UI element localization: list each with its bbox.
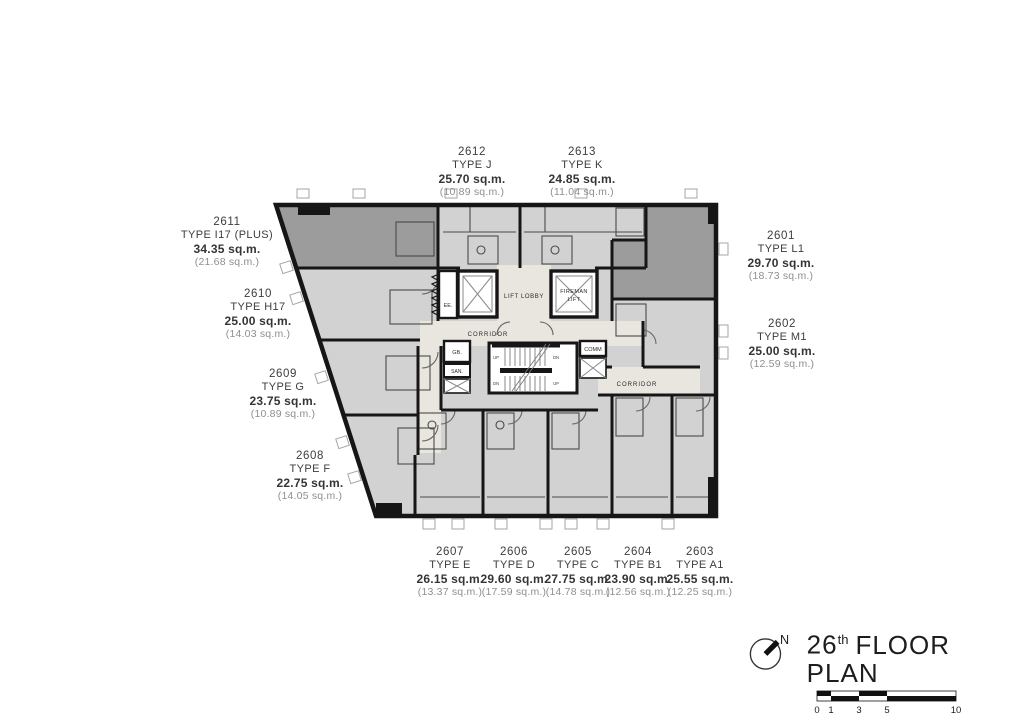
unit-label-2605: 2605 TYPE C 27.75 sq.m. (14.78 sq.m.): [545, 546, 612, 599]
unit-type: TYPE I17 (PLUS): [181, 229, 273, 242]
unit-label-2608: 2608 TYPE F 22.75 sq.m. (14.05 sq.m.): [277, 450, 344, 503]
north-compass: N: [746, 626, 793, 680]
unit-area: 27.75 sq.m.: [545, 572, 612, 586]
unit-number: 2609: [250, 368, 317, 381]
unit-label-2603: 2603 TYPE A1 25.55 sq.m. (12.25 sq.m.): [667, 546, 734, 599]
unit-number: 2603: [667, 546, 734, 559]
stairs-dn-label: DN: [493, 381, 499, 386]
unit-number: 2607: [417, 546, 484, 559]
unit-area-2611: [277, 206, 438, 268]
unit-type: TYPE C: [545, 559, 612, 572]
unit-type: TYPE M1: [749, 331, 816, 344]
stairs-dn-label: DN: [553, 355, 559, 360]
unit-number: 2605: [545, 546, 612, 559]
unit-inner-area: (17.59 sq.m.): [481, 586, 548, 599]
unit-inner-area: (21.68 sq.m.): [181, 256, 273, 269]
unit-number: 2613: [549, 146, 616, 159]
scale-tick: 10: [950, 705, 961, 716]
fireman-lift-label: FIREMAN: [560, 289, 588, 295]
unit-number: 2610: [225, 288, 292, 301]
stairs-up-label: UP: [493, 355, 499, 360]
unit-number: 2601: [748, 230, 815, 243]
unit-number: 2606: [481, 546, 548, 559]
san-label: SAN.: [451, 369, 463, 375]
unit-inner-area: (10.89 sq.m.): [439, 186, 506, 199]
unit-label-2612: 2612 TYPE J 25.70 sq.m. (10.89 sq.m.): [439, 146, 506, 199]
ordinal-suffix: th: [838, 632, 849, 647]
unit-area: 24.85 sq.m.: [549, 172, 616, 186]
unit-inner-area: (14.05 sq.m.): [277, 490, 344, 503]
unit-type: TYPE A1: [667, 559, 734, 572]
unit-inner-area: (13.37 sq.m.): [417, 586, 484, 599]
unit-area: 29.60 sq.m.: [481, 572, 548, 586]
unit-type: TYPE G: [250, 381, 317, 394]
unit-label-2609: 2609 TYPE G 23.75 sq.m. (10.89 sq.m.): [250, 368, 317, 421]
scale-tick: 5: [884, 705, 889, 716]
unit-number: 2602: [749, 318, 816, 331]
floor-plan-page: LIFT LOBBY FIREMAN LIFT CORRIDOR CORRIDO…: [0, 0, 1024, 724]
scale-tick: 1: [828, 705, 833, 716]
corridor-lower-label: CORRIDOR: [617, 382, 658, 388]
unit-type: TYPE H17: [225, 301, 292, 314]
stairs-up-label: UP: [553, 381, 559, 386]
unit-type: TYPE D: [481, 559, 548, 572]
unit-area: 23.75 sq.m.: [250, 394, 317, 408]
unit-label-2606: 2606 TYPE D 29.60 sq.m. (17.59 sq.m.): [481, 546, 548, 599]
unit-type: TYPE K: [549, 159, 616, 172]
unit-label-2607: 2607 TYPE E 26.15 sq.m. (13.37 sq.m.): [417, 546, 484, 599]
unit-area: 25.00 sq.m.: [749, 344, 816, 358]
unit-area: 25.00 sq.m.: [225, 314, 292, 328]
unit-area: 26.15 sq.m.: [417, 572, 484, 586]
floor-plan-drawing: LIFT LOBBY FIREMAN LIFT CORRIDOR CORRIDO…: [0, 0, 1024, 724]
unit-inner-area: (12.56 sq.m.): [605, 586, 672, 599]
unit-number: 2608: [277, 450, 344, 463]
unit-label-2602: 2602 TYPE M1 25.00 sq.m. (12.59 sq.m.): [749, 318, 816, 371]
unit-type: TYPE F: [277, 463, 344, 476]
comm-label: COMM: [584, 347, 602, 353]
unit-type: TYPE E: [417, 559, 484, 572]
gb-label: GB.: [452, 350, 462, 356]
unit-label-2604: 2604 TYPE B1 23.90 sq.m. (12.56 sq.m.): [605, 546, 672, 599]
unit-number: 2611: [181, 216, 273, 229]
lift-lobby-label: LIFT LOBBY: [504, 294, 544, 300]
fireman-lift-label: LIFT: [568, 297, 581, 303]
unit-inner-area: (18.73 sq.m.): [748, 270, 815, 283]
unit-number: 2604: [605, 546, 672, 559]
unit-area: 23.90 sq.m.: [605, 572, 672, 586]
unit-area: 22.75 sq.m.: [277, 476, 344, 490]
unit-number: 2612: [439, 146, 506, 159]
ee-label: EE.: [444, 303, 453, 309]
unit-inner-area: (10.89 sq.m.): [250, 408, 317, 421]
unit-label-2613: 2613 TYPE K 24.85 sq.m. (11.04 sq.m.): [549, 146, 616, 199]
unit-type: TYPE J: [439, 159, 506, 172]
unit-inner-area: (11.04 sq.m.): [549, 186, 616, 199]
plan-title: 26thFLOOR PLAN: [807, 626, 1024, 687]
unit-type: TYPE L1: [748, 243, 815, 256]
unit-label-2611: 2611 TYPE I17 (PLUS) 34.35 sq.m. (21.68 …: [181, 216, 273, 269]
north-label: N: [780, 633, 789, 647]
scale-tick: 3: [856, 705, 861, 716]
stairs: [489, 343, 577, 393]
unit-type: TYPE B1: [605, 559, 672, 572]
legend: N 26thFLOOR PLAN 0 1 3 5 10: [746, 626, 1024, 716]
unit-inner-area: (12.25 sq.m.): [667, 586, 734, 599]
scale-tick: 0: [814, 705, 819, 716]
lift-shaft: [458, 271, 497, 317]
unit-inner-area: (12.59 sq.m.): [749, 358, 816, 371]
unit-area: 25.70 sq.m.: [439, 172, 506, 186]
unit-area: 34.35 sq.m.: [181, 242, 273, 256]
unit-label-2610: 2610 TYPE H17 25.00 sq.m. (14.03 sq.m.): [225, 288, 292, 341]
corridor-upper-label: CORRIDOR: [468, 332, 509, 338]
unit-area: 25.55 sq.m.: [667, 572, 734, 586]
unit-inner-area: (14.78 sq.m.): [545, 586, 612, 599]
unit-inner-area: (14.03 sq.m.): [225, 328, 292, 341]
unit-area: 29.70 sq.m.: [748, 256, 815, 270]
unit-label-2601: 2601 TYPE L1 29.70 sq.m. (18.73 sq.m.): [748, 230, 815, 283]
floor-number: 26: [807, 630, 838, 660]
scale-bar: 0 1 3 5 10: [807, 688, 967, 716]
